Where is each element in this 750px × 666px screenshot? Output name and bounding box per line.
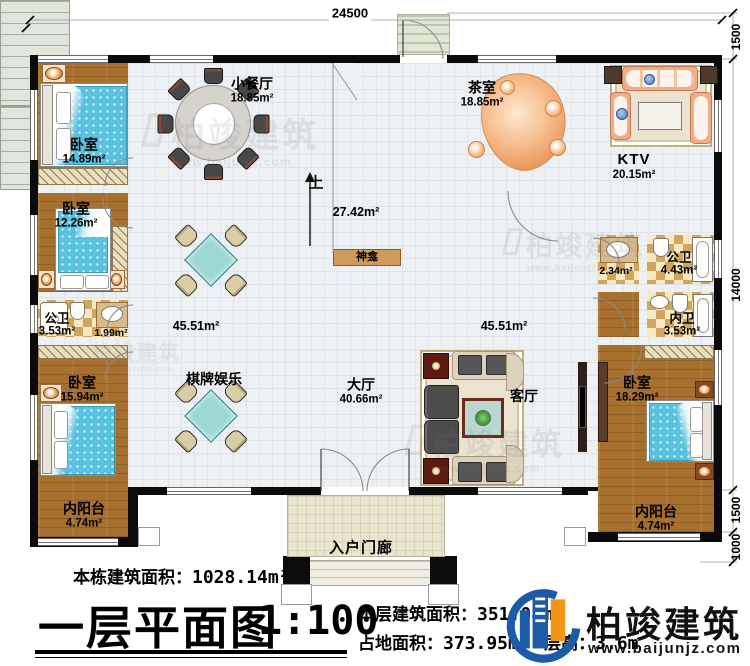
area-label-open-right: 45.51m²: [481, 319, 528, 333]
title-underline-thin: [35, 657, 347, 658]
room-label-bedroom2: 卧室12.26m²: [55, 202, 98, 231]
lamp-icon: [111, 273, 122, 286]
tv-screen: [579, 386, 586, 428]
dim-right-lower: 1500: [729, 497, 743, 524]
window-bed3-left: [30, 395, 38, 460]
watermark-logo-icon: [141, 113, 168, 147]
window-bed1-top: [38, 55, 108, 63]
room-label-bedroom3: 卧室15.94m²: [61, 376, 104, 405]
window-bathR-right: [714, 240, 722, 278]
land-area-label: 占地面积：: [358, 634, 443, 653]
window-hall-bottom-right: [478, 487, 562, 495]
area-label-stairhall: 27.42m²: [333, 205, 380, 219]
ktv-person: [616, 108, 628, 120]
bed-pillow: [85, 275, 109, 289]
ktv-person: [644, 74, 655, 85]
lamp-icon: [41, 273, 52, 286]
title-underline: [35, 650, 347, 654]
room-label-hall: 大厅40.66m²: [340, 378, 383, 407]
room-label-living: 客厅: [510, 389, 538, 405]
room-label-balconyL: 内阳台4.74m²: [63, 502, 105, 531]
floor-plan-canvas: 柏竣建筑 www.baijunjz.com 柏竣建筑 www.baijunjz.…: [0, 0, 750, 666]
bed4: [646, 400, 714, 462]
area-label-vanityL: 1.99m²: [94, 328, 127, 340]
room-label-dining: 小餐厅18.85m²: [231, 77, 274, 106]
brand-url: www.baijunjz.com: [588, 640, 741, 657]
rear-porch-floor: [397, 14, 450, 55]
window-bathL-left: [30, 305, 38, 333]
lamp-icon: [43, 387, 59, 399]
bed4-dresser: [598, 362, 608, 442]
lamp-icon: [698, 466, 711, 477]
nightstand: [695, 463, 714, 480]
bed-headboard: [702, 402, 712, 460]
dim-right-bottom: 1000: [729, 534, 743, 561]
window-hall-bottom-left: [167, 487, 251, 495]
wardrobe-bedroom1: [38, 168, 128, 185]
tea-decor-ball: [549, 139, 566, 156]
room-label-games: 棋牌娱乐: [186, 372, 242, 388]
living-side-table-top: [423, 353, 449, 379]
watermark-logo-icon: [502, 228, 524, 255]
corner-step-right: [564, 527, 586, 546]
bed-pillow: [690, 433, 703, 458]
room-label-bedroom1: 卧室14.89m²: [63, 138, 106, 167]
tea-decor-ball: [468, 141, 485, 158]
toilet: [672, 294, 688, 313]
room-label-up: 上: [308, 176, 323, 193]
bed-headboard: [42, 405, 52, 474]
floor-area-label: 本层建筑面积：: [358, 605, 477, 624]
sink: [101, 306, 123, 322]
room-label-porch: 入户门廊: [329, 541, 393, 558]
entry-steps: [300, 560, 432, 586]
total-area-label: 本栋建筑面积：: [73, 568, 192, 587]
bed-headboard: [42, 85, 53, 165]
area-label-open-left: 45.51m²: [173, 319, 220, 333]
ktv-sofa-right: [690, 92, 712, 144]
bed-pillow: [690, 407, 703, 432]
watermark: 柏竣建筑 www.baijunjz.com: [145, 108, 319, 169]
ktv-sofa-top: [622, 66, 698, 91]
living-armchair: [424, 385, 459, 419]
nightstand: [40, 384, 62, 402]
room-label-bathR: 公卫4.43m²: [661, 251, 697, 278]
ktv-coffee-table: [638, 102, 682, 130]
bed-pillow: [56, 92, 71, 124]
dining-chair: [204, 68, 223, 84]
wardrobe-bedroom4: [644, 345, 714, 359]
ktv-side-table: [604, 66, 622, 84]
door-gap-rear: [400, 55, 447, 63]
lamp-icon: [698, 384, 711, 395]
window-ktv-right: [714, 100, 722, 152]
room-label-balconyR: 内阳台4.74m²: [635, 505, 677, 534]
watermark: 柏竣建筑 www.baijunjz.com: [92, 336, 181, 373]
sofa-cushion: [458, 355, 482, 375]
porch-column-right: [430, 556, 457, 584]
window-bed2-left: [30, 215, 38, 275]
watermark: 柏竣建筑 www.baijunjz.com: [408, 420, 565, 475]
page-title: 一层平面图: [38, 592, 278, 658]
bed-pillow: [60, 275, 84, 289]
total-area-value: 1028.14m²: [192, 567, 290, 588]
lamp-icon: [45, 67, 63, 80]
bed-pillow: [54, 411, 68, 439]
window-balconyL-bottom: [38, 538, 118, 546]
nightstand: [695, 381, 714, 398]
dim-right-main: 14000: [729, 268, 743, 301]
room-label-bedroom4: 卧室18.29m²: [616, 376, 659, 405]
ktv-side-table: [700, 66, 718, 84]
window-bed4-right: [714, 350, 722, 405]
nightstand: [38, 270, 55, 289]
dim-right-top: 1500: [729, 24, 743, 51]
window-bed1-left: [30, 90, 38, 160]
room-label-ktv: KTV20.15m²: [613, 152, 656, 182]
room-label-shrine: 神龛: [356, 251, 378, 263]
bed-pillow: [54, 441, 68, 469]
bed3: [40, 403, 116, 476]
room-label-bathL: 公卫3.53m²: [39, 312, 75, 339]
area-label-vanityR: 2.34m²: [599, 266, 632, 278]
window-tea-top: [478, 55, 556, 63]
tea-decor-ball: [545, 100, 562, 117]
dim-top: 24500: [329, 6, 371, 21]
room-label-tea: 茶室18.85m²: [461, 81, 504, 110]
sink: [650, 295, 669, 309]
window-dining-top: [150, 55, 213, 63]
watermark-logo-icon: [404, 425, 429, 456]
room-label-ensuite: 内卫3.53m²: [664, 312, 700, 339]
brand-logo-icon: [492, 583, 584, 663]
corridor-right-floor: [598, 292, 639, 337]
corner-step-left: [138, 527, 160, 546]
window-balconyR-bottom: [618, 533, 700, 541]
nightstand: [42, 64, 66, 83]
total-area-row: 本栋建筑面积：1028.14m²: [73, 563, 290, 588]
